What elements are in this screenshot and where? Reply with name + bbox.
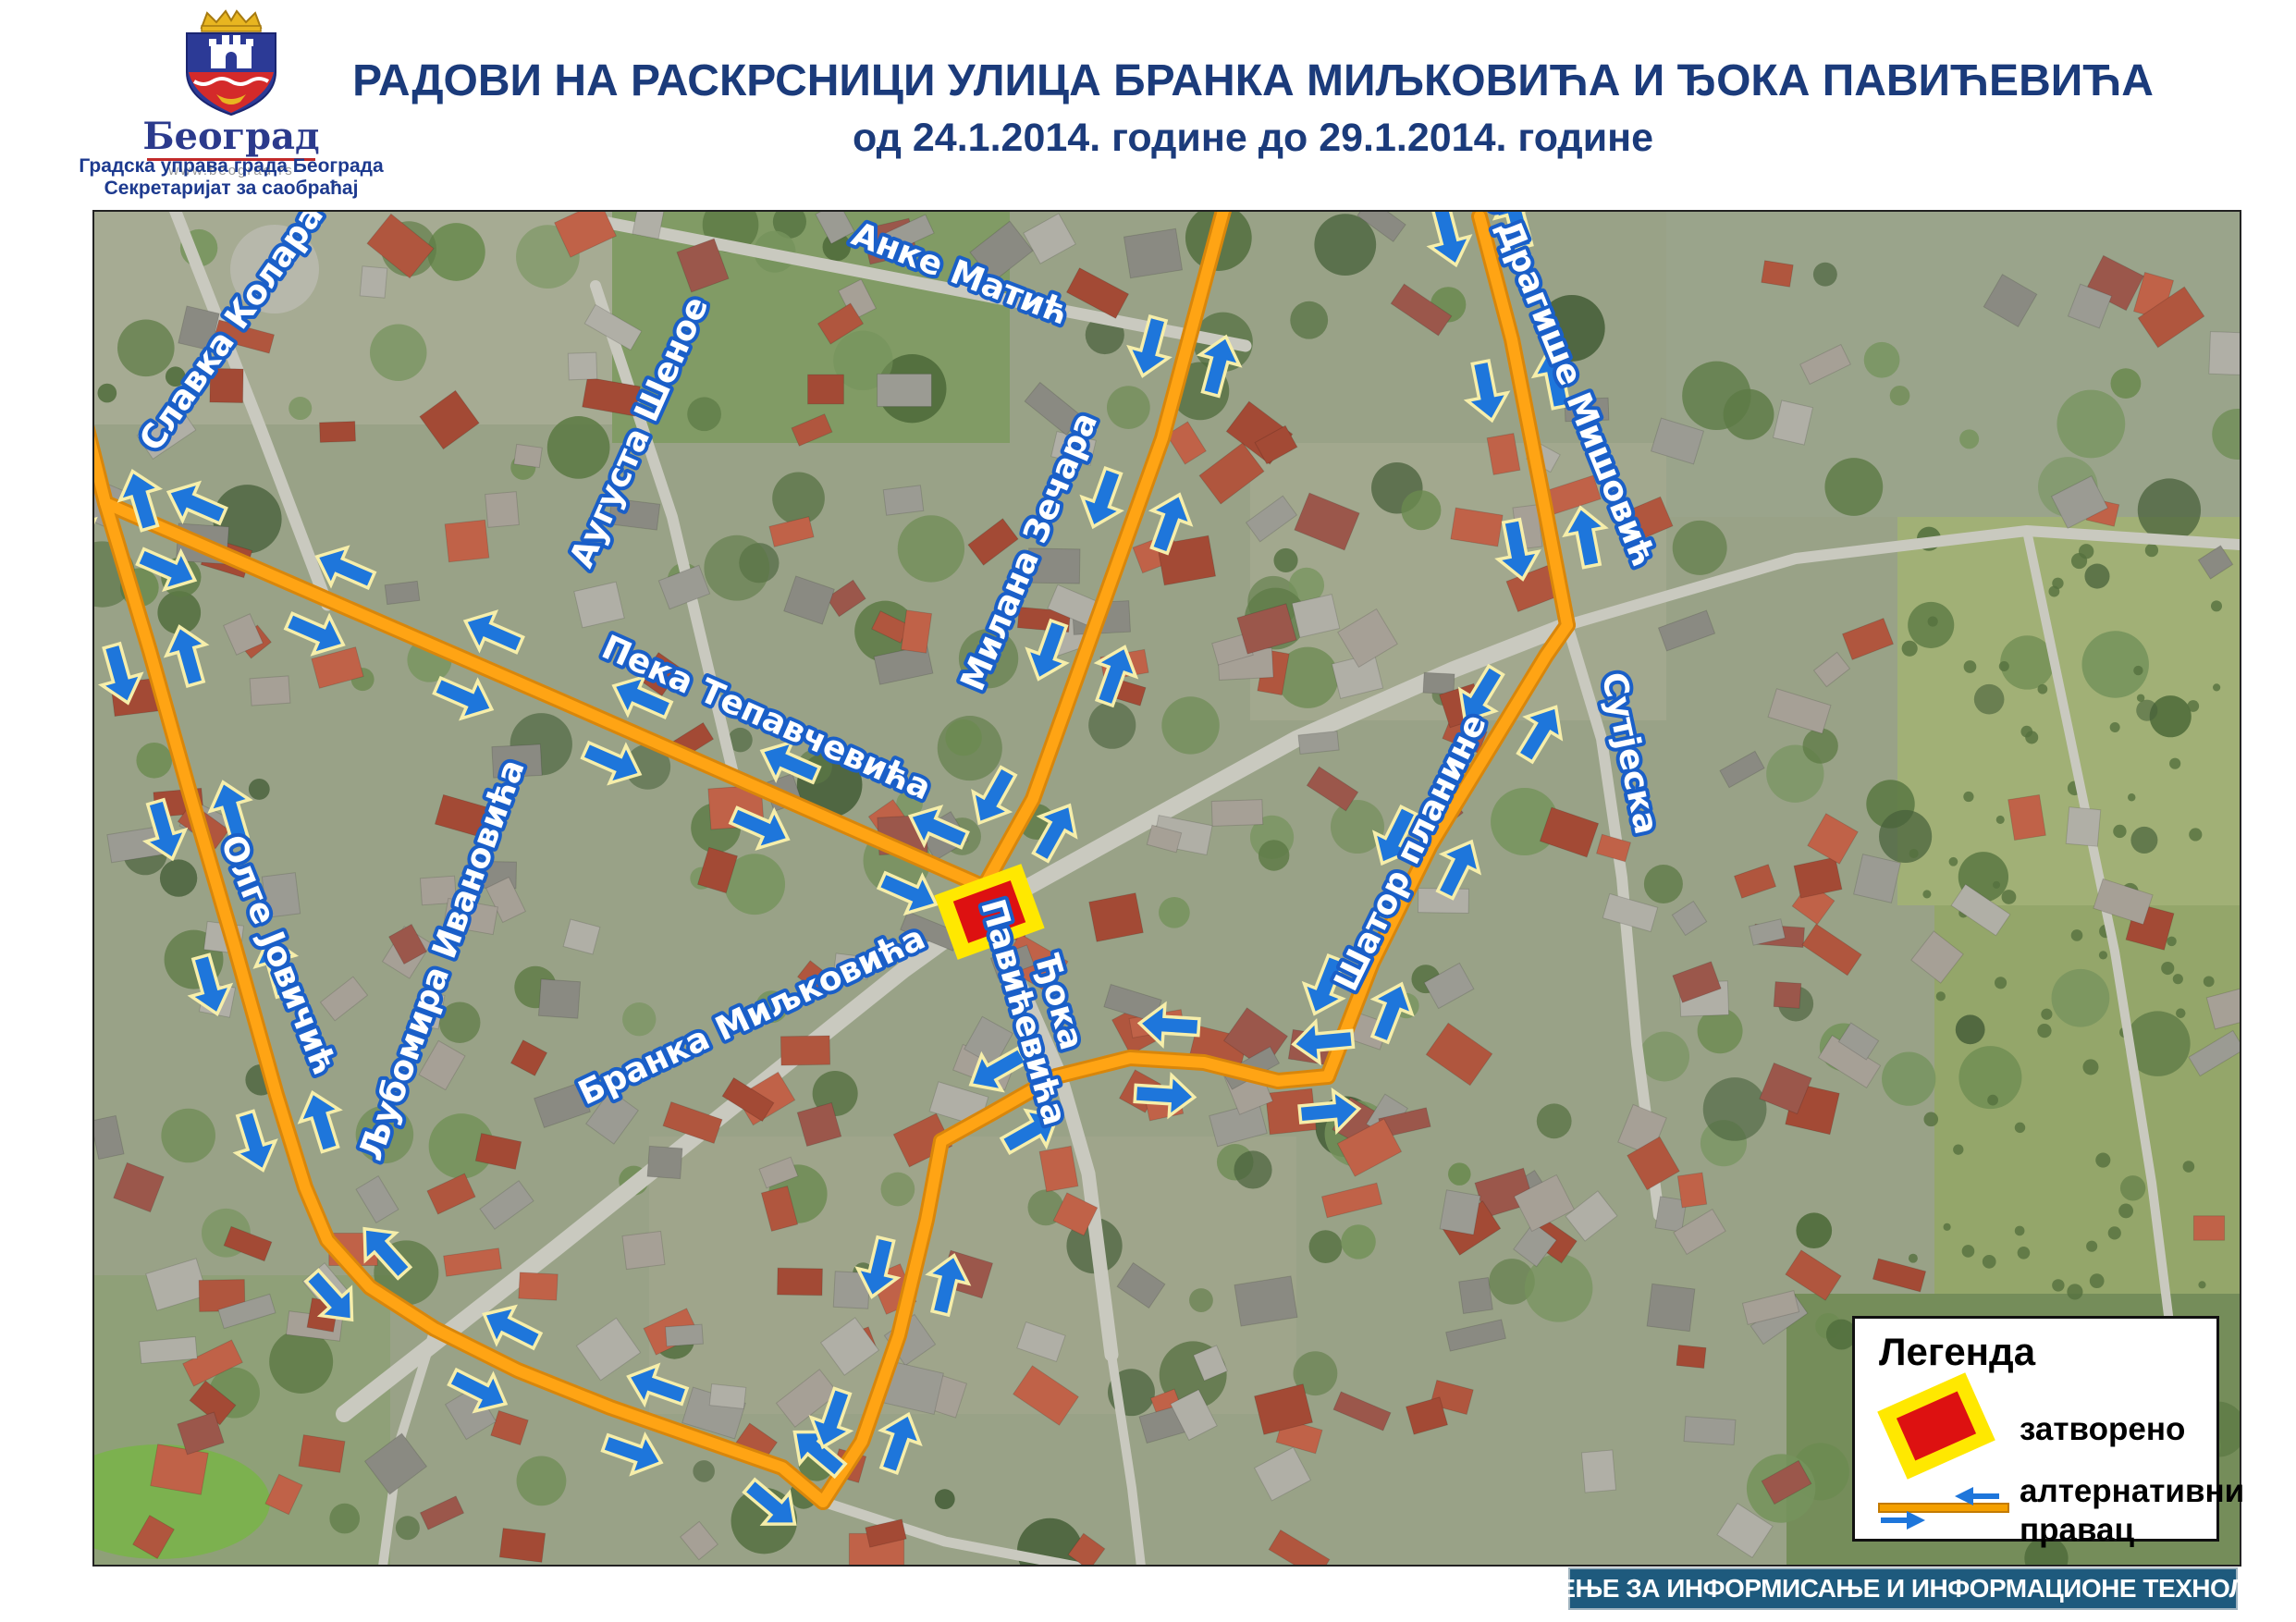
alternative-route-icon — [1877, 1483, 2012, 1531]
poster-title: РАДОВИ НА РАСКРСНИЦИ УЛИЦА БРАНКА МИЉКОВ… — [351, 55, 2155, 106]
arrow-right-icon — [1881, 1511, 1925, 1530]
poster-title-block: РАДОВИ НА РАСКРСНИЦИ УЛИЦА БРАНКА МИЉКОВ… — [351, 55, 2155, 161]
header-logo: Београд www.beograd.rs — [88, 7, 374, 178]
legend-closed-label: затворено — [2020, 1411, 2185, 1448]
crown-icon — [202, 11, 261, 31]
belgrade-coat-of-arms-icon — [174, 7, 289, 117]
org-line-2: Секретаријат за саобраћај — [55, 178, 407, 200]
organization-block: Градска управа града Београда Секретариј… — [55, 155, 407, 200]
closed-road-icon-inner — [1897, 1392, 1976, 1461]
footer-department-bar: ОДЕЉЕЊЕ ЗА ИНФОРМИСАЊЕ И ИНФОРМАЦИОНЕ ТЕ… — [1568, 1567, 2238, 1610]
legend-title: Легенда — [1879, 1330, 2216, 1374]
legend: Легенда затворено алтернативни правац — [1852, 1316, 2219, 1542]
closed-road-icon — [1877, 1372, 1995, 1479]
footer-department-label: ОДЕЉЕЊЕ ЗА ИНФОРМИСАЊЕ И ИНФОРМАЦИОНЕ ТЕ… — [1477, 1574, 2296, 1604]
traffic-works-poster: { "poster": { "logo": { "city": "Београд… — [0, 0, 2296, 1622]
poster-subtitle: од 24.1.2014. године до 29.1.2014. годин… — [351, 116, 2155, 161]
city-name: Београд — [88, 118, 374, 155]
legend-alt-label: алтернативни правац — [2020, 1472, 2244, 1550]
shield-icon — [187, 33, 276, 115]
